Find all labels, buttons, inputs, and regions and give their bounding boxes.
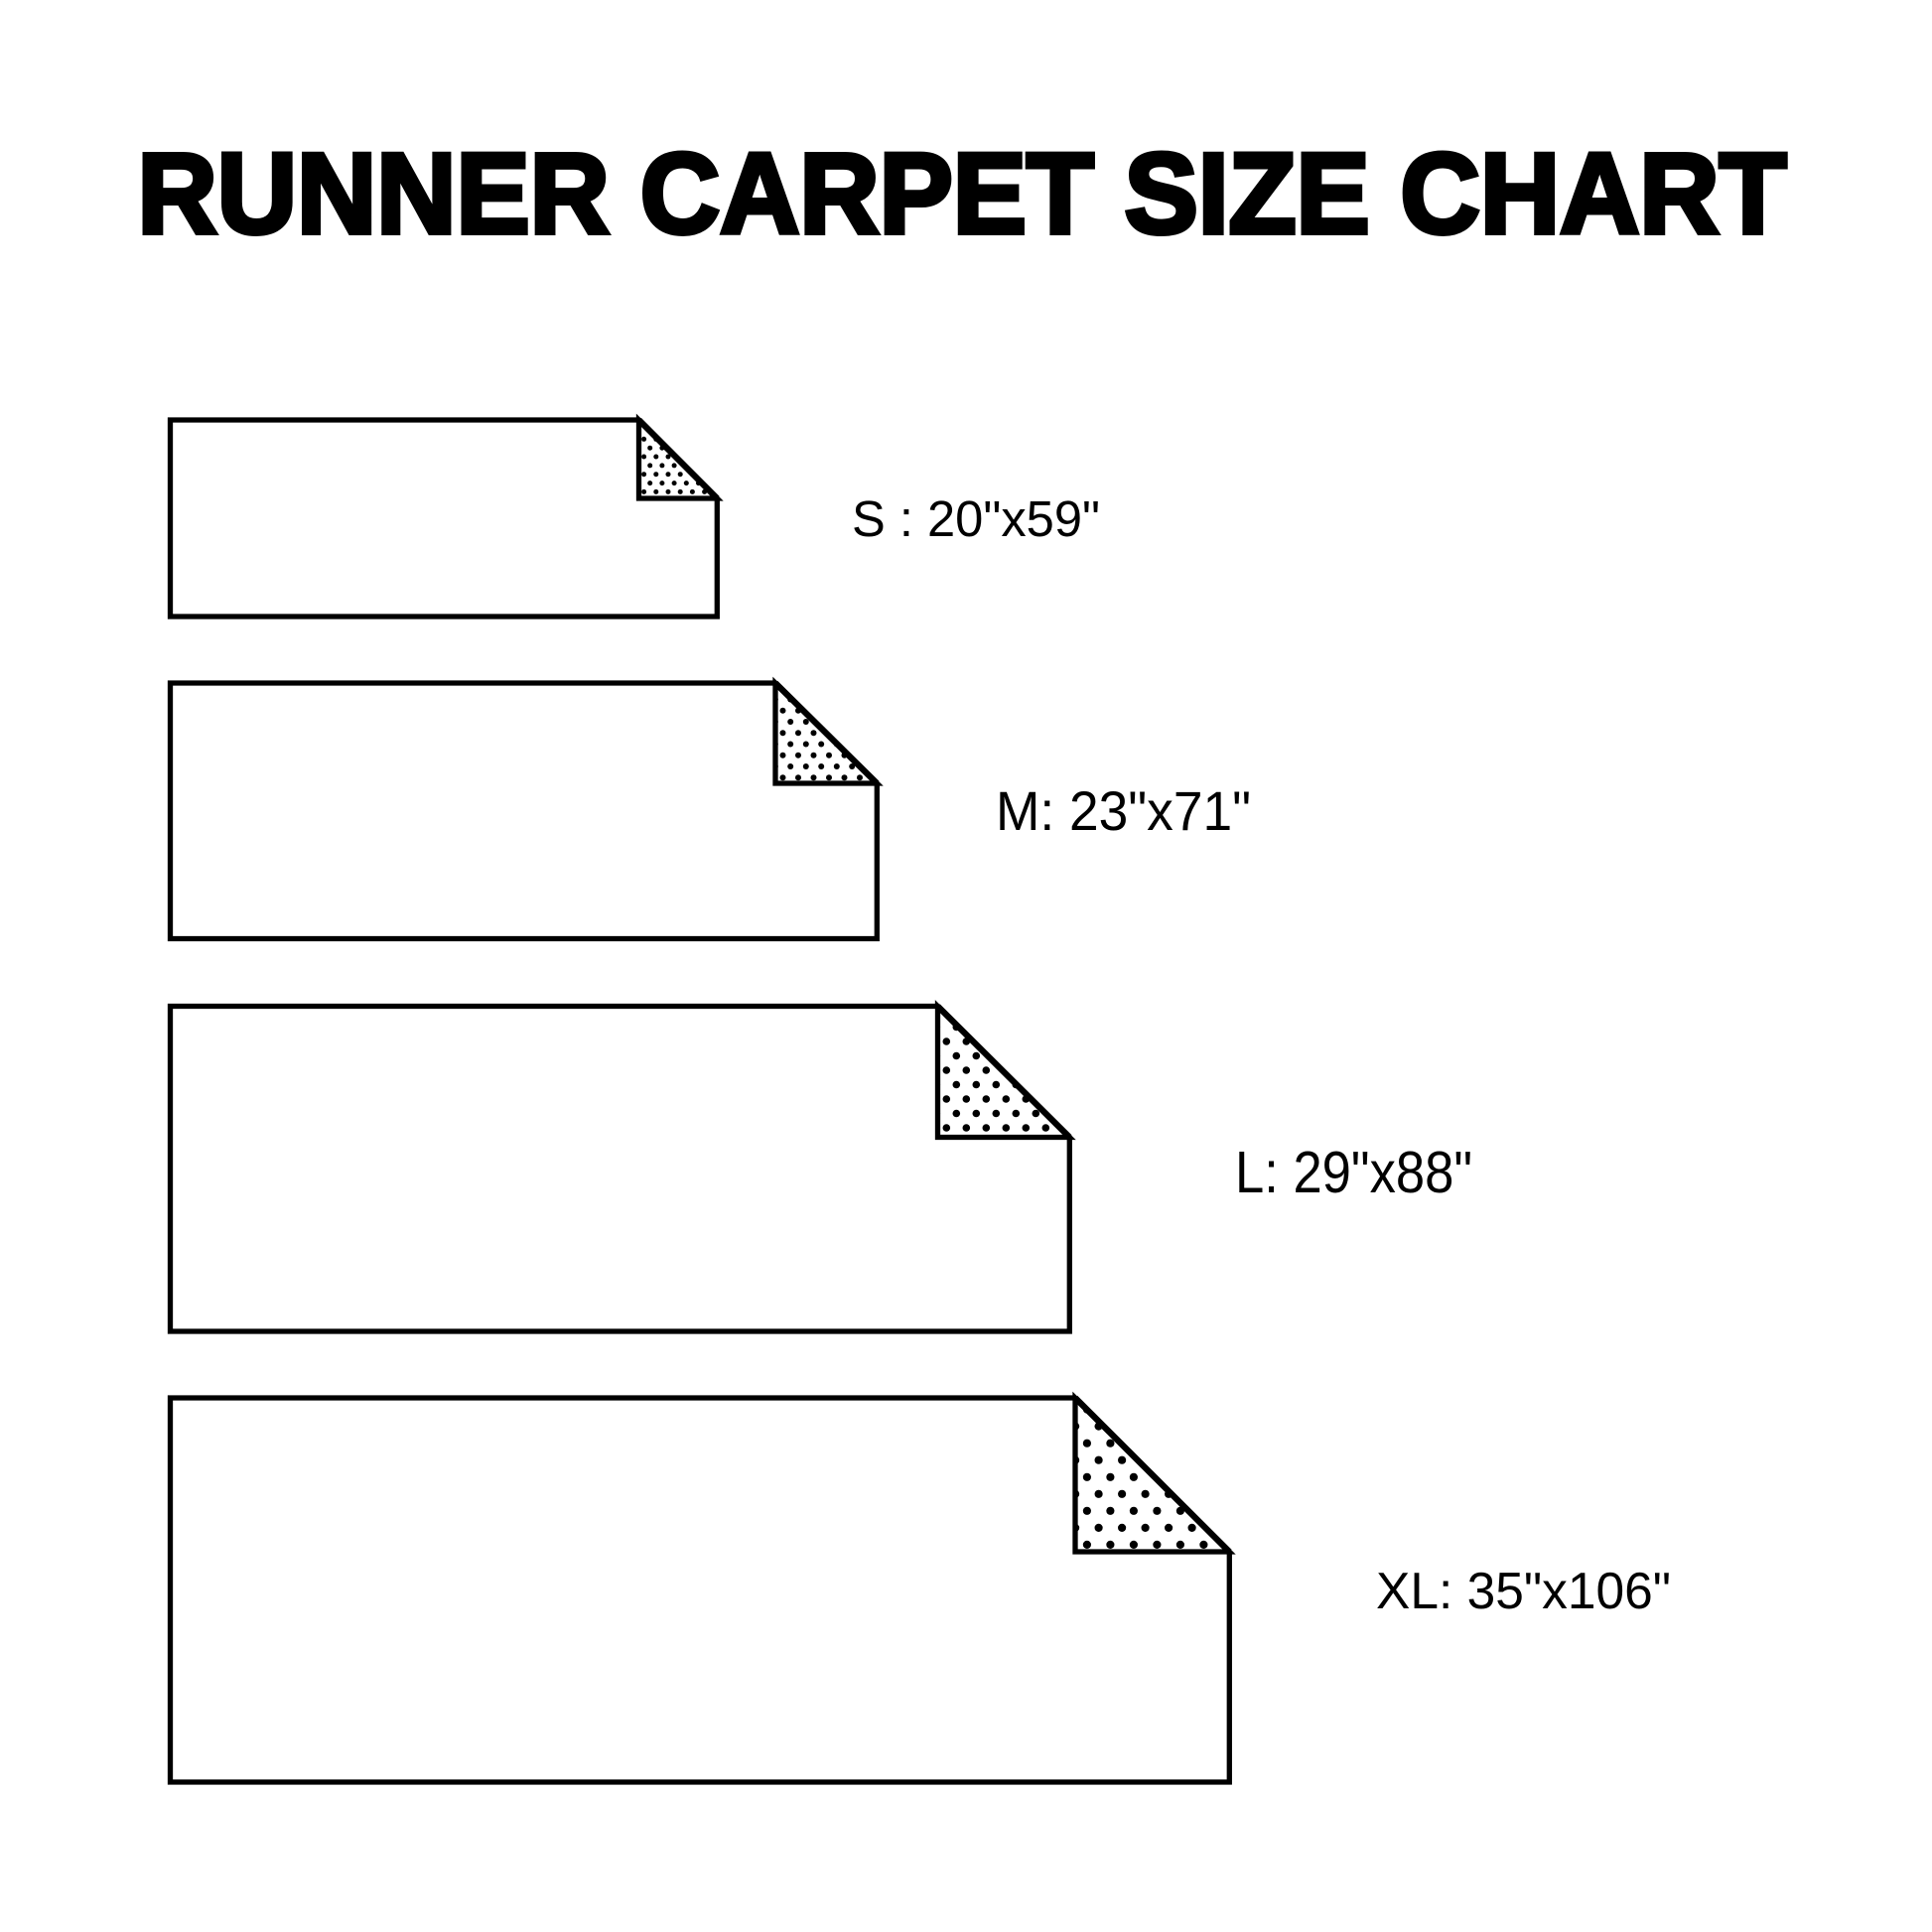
svg-text:XL: 35"x106": XL: 35"x106" [1376, 1563, 1671, 1620]
svg-text:M: 23"x71": M: 23"x71" [996, 779, 1251, 842]
svg-text:L: 29"x88": L: 29"x88" [1235, 1140, 1472, 1205]
svg-text:S : 20"x59": S : 20"x59" [852, 490, 1100, 547]
svg-text:RUNNER CARPET SIZE CHART: RUNNER CARPET SIZE CHART [138, 131, 1787, 258]
